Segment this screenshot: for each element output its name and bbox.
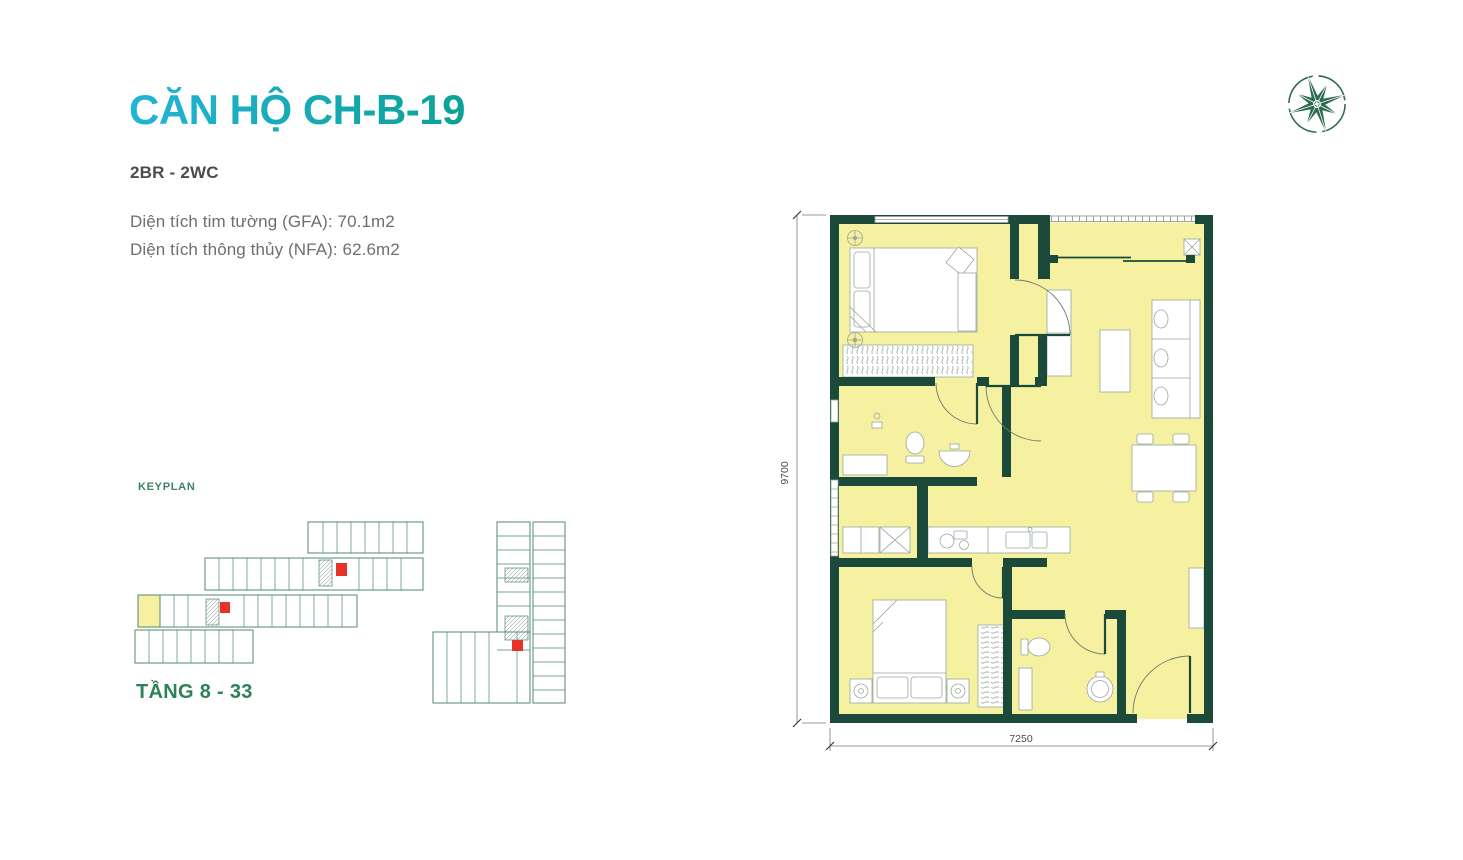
keyplan-building-wings (135, 522, 565, 703)
nfa-text: Diện tích thông thủy (NFA): 62.6m2 (130, 240, 400, 260)
page: { "page": { "background": "#ffffff" }, "… (0, 0, 1463, 860)
vanity-1-icon (843, 455, 887, 475)
height-dimension-label: 9700 (780, 461, 791, 485)
toilet-2-icon (1021, 638, 1050, 656)
keyplan-drawing (133, 516, 578, 708)
vanity-2-icon (1019, 668, 1032, 710)
tall-cabinet-icon (1047, 290, 1071, 376)
page-title: CĂN HỘ CH-B-19 (129, 86, 465, 134)
coffee-table-icon (1100, 330, 1130, 392)
kitchen-counter-icon (928, 527, 1070, 553)
keyplan-highlight-unit (138, 595, 160, 627)
cabinet-icon (843, 527, 879, 553)
balcony-railing-icon (1050, 215, 1195, 223)
floorplan-drawing: 9700 7250 (780, 195, 1255, 780)
keyplan-label: KEYPLAN (138, 481, 195, 493)
wardrobe-2-icon (978, 625, 1007, 707)
gfa-text: Diện tích tim tường (GFA): 70.1m2 (130, 212, 395, 232)
floor-range-label: TẦNG 8 - 33 (136, 681, 253, 704)
washer-icon (880, 527, 910, 553)
sofa-icon (1152, 300, 1200, 418)
toilet-1-icon (906, 432, 924, 463)
width-dimension-label: 7250 (1009, 733, 1033, 745)
chaise-icon (958, 273, 976, 331)
louver-icon (831, 480, 838, 556)
shoe-cabinet-icon (1189, 568, 1204, 628)
ac-unit-icon (1184, 239, 1200, 255)
logo-star (1285, 72, 1349, 136)
compass-star-logo-icon (1285, 72, 1349, 136)
unit-type-label: 2BR - 2WC (130, 163, 219, 183)
side-window-icon (831, 400, 838, 422)
bed-2-icon (873, 600, 946, 703)
wardrobe-1-icon (843, 345, 973, 377)
